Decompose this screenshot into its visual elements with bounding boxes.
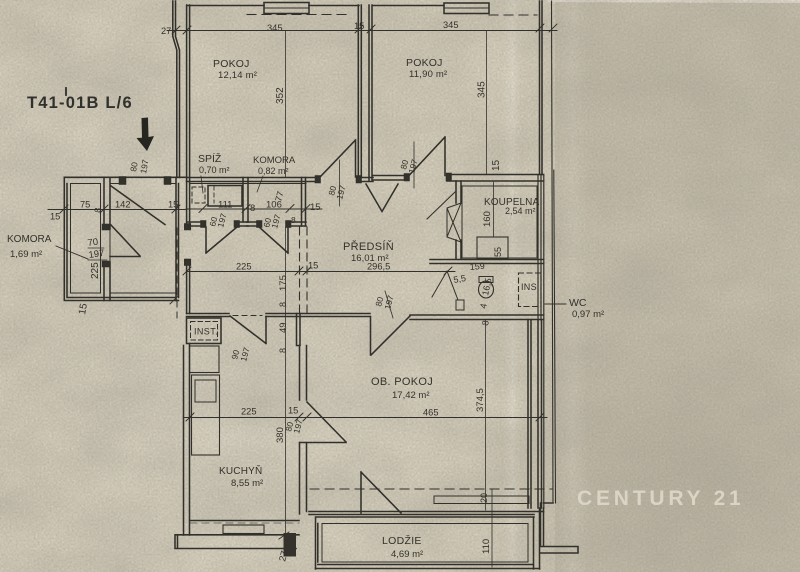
svg-text:0,97 m²: 0,97 m²	[572, 309, 604, 320]
svg-text:INS.: INS.	[521, 282, 540, 292]
svg-text:8: 8	[278, 302, 288, 307]
svg-text:17,42 m²: 17,42 m²	[392, 390, 430, 401]
svg-text:11,90 m²: 11,90 m²	[409, 69, 447, 80]
svg-text:8,55 m²: 8,55 m²	[231, 478, 263, 489]
svg-text:4,69 m²: 4,69 m²	[391, 549, 423, 560]
svg-text:2,54 m²: 2,54 m²	[505, 206, 536, 216]
svg-text:T41-01B L/6: T41-01B L/6	[27, 94, 133, 112]
svg-text:0,82 m²: 0,82 m²	[258, 166, 289, 176]
svg-text:27: 27	[161, 26, 171, 36]
svg-text:8: 8	[291, 215, 296, 225]
svg-text:111: 111	[218, 200, 232, 211]
svg-text:LODŽIE: LODŽIE	[382, 534, 422, 547]
svg-text:374,5: 374,5	[475, 388, 486, 412]
svg-text:49: 49	[278, 322, 289, 333]
svg-text:225: 225	[236, 262, 252, 272]
svg-text:KOMORA: KOMORA	[253, 155, 296, 166]
svg-text:110: 110	[481, 539, 492, 554]
svg-text:142: 142	[115, 200, 131, 210]
svg-text:160: 160	[482, 211, 493, 227]
svg-text:KUCHYŇ: KUCHYŇ	[219, 464, 262, 477]
svg-text:225: 225	[241, 407, 257, 417]
svg-text:POKOJ: POKOJ	[213, 58, 250, 70]
svg-text:55: 55	[493, 247, 503, 257]
svg-text:5,5: 5,5	[453, 273, 467, 285]
svg-text:PŘEDSÍŇ: PŘEDSÍŇ	[343, 240, 394, 253]
svg-text:WC: WC	[569, 297, 587, 309]
svg-text:0,70 m²: 0,70 m²	[199, 165, 230, 175]
svg-text:SPÍŽ: SPÍŽ	[198, 152, 222, 165]
svg-text:345: 345	[443, 20, 459, 30]
svg-text:20: 20	[479, 493, 489, 503]
svg-text:465: 465	[423, 408, 439, 418]
svg-text:296,5: 296,5	[367, 262, 390, 272]
svg-text:1,69 m²: 1,69 m²	[10, 249, 42, 260]
svg-text:INST.: INST.	[194, 327, 218, 337]
svg-text:225: 225	[90, 262, 101, 279]
svg-text:15: 15	[50, 212, 60, 222]
svg-text:KOMORA: KOMORA	[7, 234, 52, 245]
svg-text:15: 15	[168, 200, 178, 210]
svg-text:12,14 m²: 12,14 m²	[218, 70, 257, 81]
svg-text:8: 8	[278, 348, 288, 353]
svg-text:345: 345	[267, 23, 283, 33]
svg-text:15: 15	[288, 406, 298, 416]
svg-text:197: 197	[88, 248, 105, 261]
svg-text:POKOJ: POKOJ	[406, 57, 443, 69]
svg-text:CENTURY 21: CENTURY 21	[577, 487, 745, 510]
svg-text:75: 75	[80, 200, 90, 210]
svg-text:175: 175	[278, 275, 289, 291]
svg-text:352: 352	[275, 87, 286, 104]
svg-text:15: 15	[491, 159, 502, 171]
svg-text:15: 15	[310, 202, 321, 213]
svg-text:OB. POKOJ: OB. POKOJ	[371, 376, 433, 388]
svg-text:15: 15	[354, 21, 364, 31]
svg-text:345: 345	[477, 81, 488, 98]
svg-text:8: 8	[250, 203, 255, 214]
svg-text:159: 159	[469, 261, 485, 272]
svg-text:70: 70	[87, 237, 99, 249]
svg-text:15: 15	[308, 261, 318, 271]
